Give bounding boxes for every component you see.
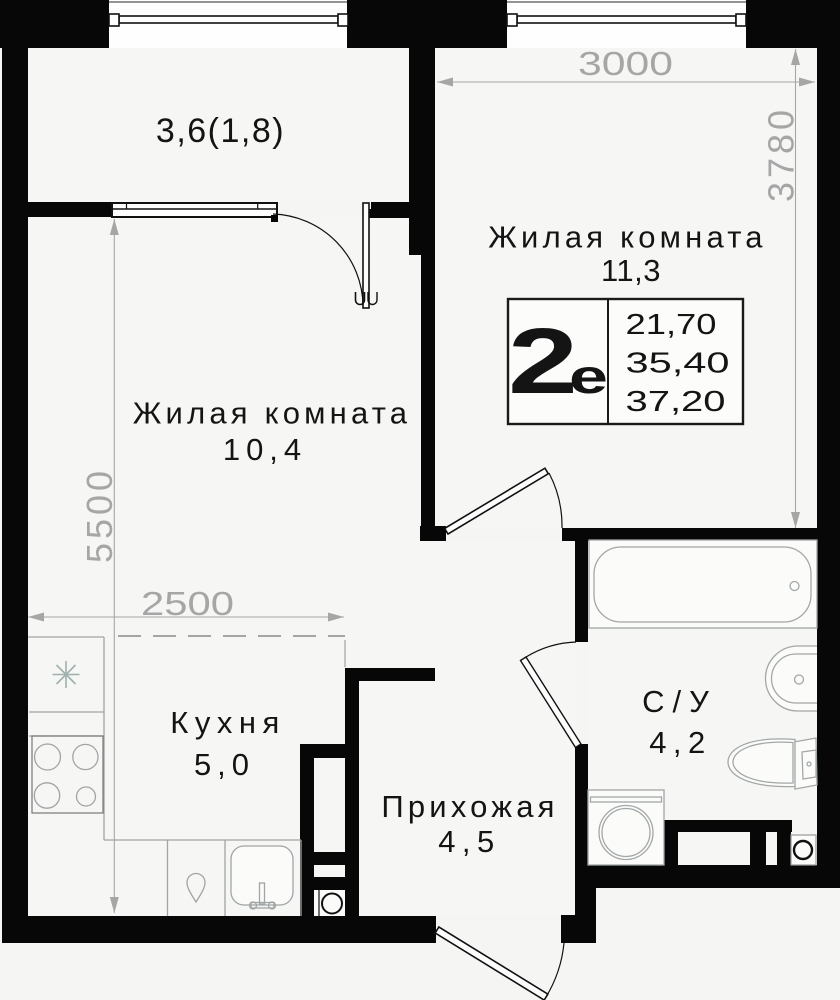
svg-text:37,20: 37,20 bbox=[626, 386, 726, 418]
svg-text:С/У: С/У bbox=[642, 684, 717, 719]
svg-text:5,0: 5,0 bbox=[194, 747, 255, 782]
svg-text:Кухня: Кухня bbox=[170, 705, 285, 740]
svg-text:10,4: 10,4 bbox=[223, 432, 307, 467]
svg-text:Жилая комната: Жилая комната bbox=[488, 220, 767, 255]
svg-text:3000: 3000 bbox=[578, 45, 673, 82]
svg-text:3780: 3780 bbox=[761, 106, 802, 202]
svg-text:Жилая комната: Жилая комната bbox=[133, 396, 412, 431]
svg-text:2: 2 bbox=[508, 309, 578, 413]
svg-text:5500: 5500 bbox=[79, 467, 120, 563]
svg-text:3,6(1,8): 3,6(1,8) bbox=[156, 112, 285, 150]
svg-text:35,40: 35,40 bbox=[626, 348, 730, 380]
svg-text:4,2: 4,2 bbox=[649, 725, 712, 760]
svg-text:11,3: 11,3 bbox=[601, 253, 661, 288]
svg-text:21,70: 21,70 bbox=[626, 309, 717, 341]
svg-text:2500: 2500 bbox=[141, 585, 234, 622]
svg-text:Прихожая: Прихожая bbox=[381, 789, 558, 824]
svg-text:4,5: 4,5 bbox=[438, 824, 501, 859]
svg-text:е: е bbox=[569, 351, 608, 404]
